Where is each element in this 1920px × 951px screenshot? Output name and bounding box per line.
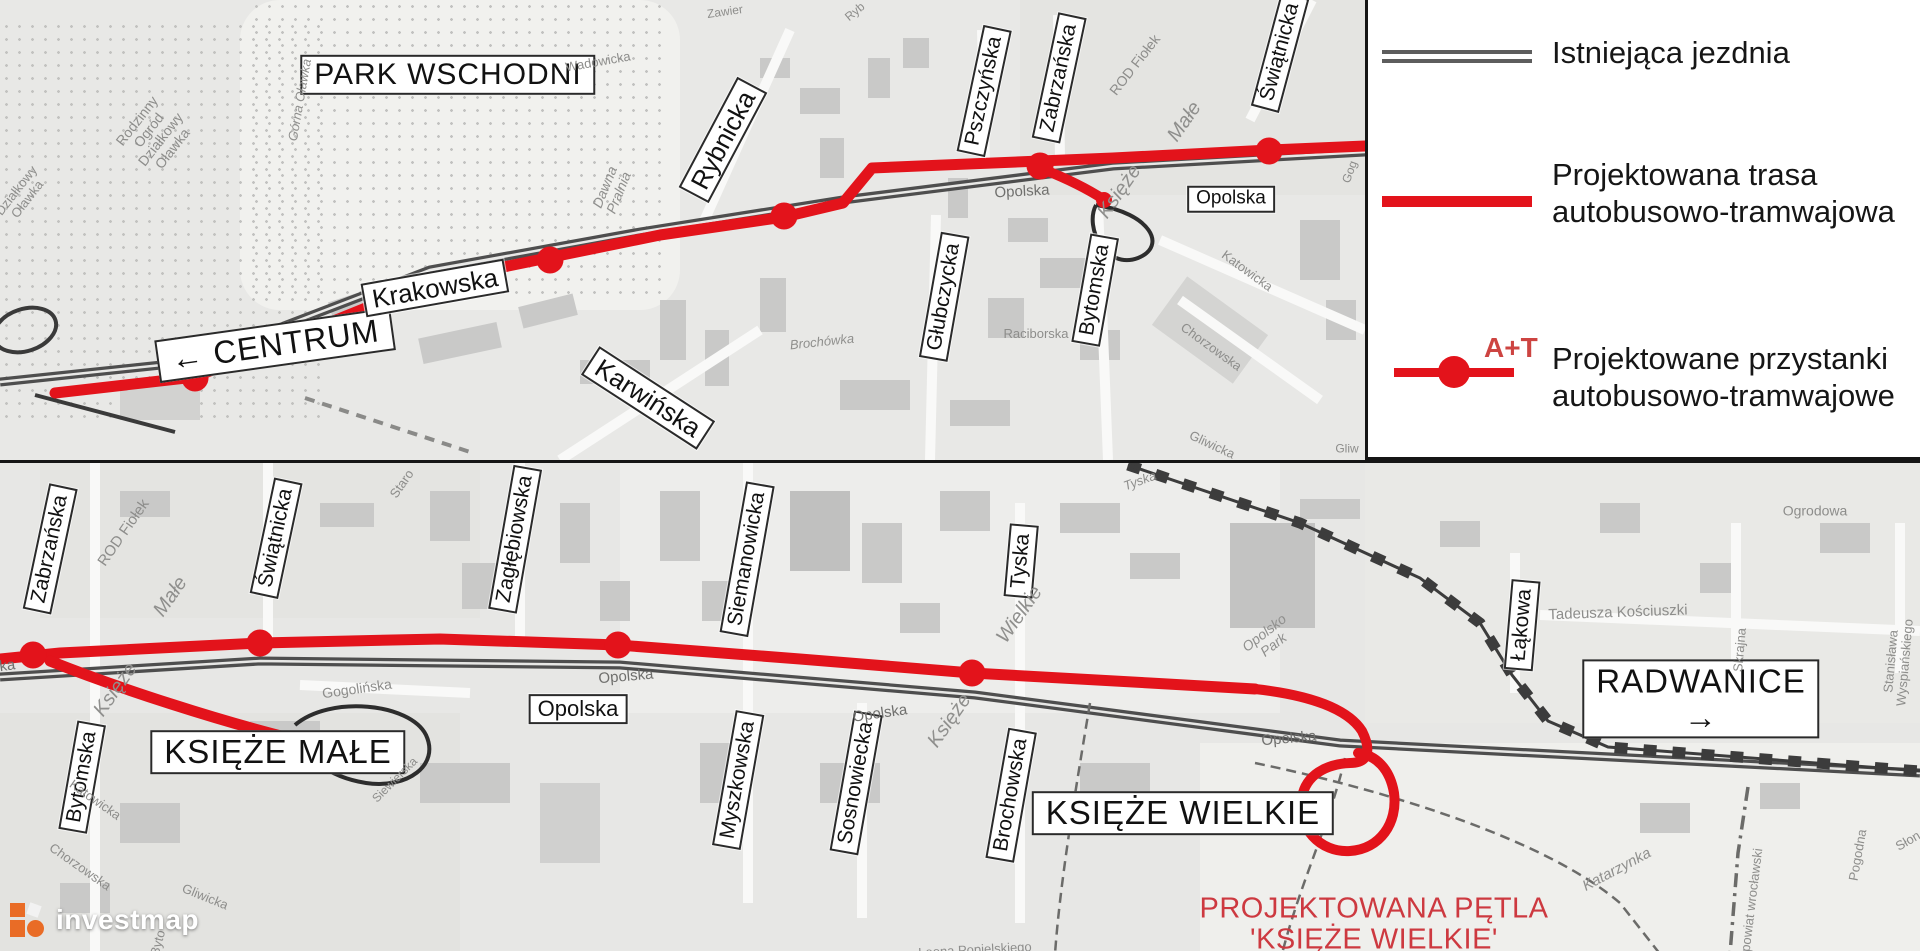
- bottom-map-labels: ZabrzańskaŚwiątnickaZagłębiowskaSiemanow…: [0, 463, 1920, 951]
- minor-label-katarzynka: Katarzynka: [1580, 845, 1654, 895]
- street-label-opolska: Opolska: [1187, 186, 1275, 213]
- legend-item-existing-road: Istniejąca jezdnia: [1368, 28, 1920, 108]
- legend-panel: Istniejąca jezdnia Projektowana trasa au…: [1365, 0, 1920, 460]
- minor-label-rod-fiolek-2: ROD Fiołek: [95, 497, 153, 570]
- street-label-lakowa: Łąkowa: [1504, 579, 1540, 672]
- caption-projektowana-petla: PROJEKTOWANA PĘTLA 'KSIĘŻE WIELKIE': [1199, 894, 1548, 951]
- minor-label-dawna-pralnia: Dawna Pralnia: [590, 164, 634, 216]
- minor-label-gogolinska: Gogolińska: [321, 677, 392, 702]
- minor-label-slon: Słon: [1893, 828, 1920, 853]
- minor-label-ksieze-wielkie-2: Wielkie: [993, 582, 1048, 647]
- legend-label-planned-route: Projektowana trasa autobusowo-tramwajowa: [1552, 156, 1895, 230]
- investmap-logo-icon: [10, 901, 46, 939]
- minor-label-wadowicka: Wadowicka: [564, 49, 631, 74]
- minor-label-ksieze-male-2: Małe: [1164, 98, 1207, 146]
- minor-label-ksieze-male-1: Księże: [1094, 161, 1146, 223]
- area-label-ksieze-male: KSIĘŻE MAŁE: [150, 730, 405, 774]
- street-label-swiatnicka-2: Świątnicka: [250, 477, 303, 599]
- area-label-park-wschodni: PARK WSCHODNI: [300, 55, 595, 95]
- street-label-bytomska-2: Bytomska: [58, 720, 105, 834]
- minor-label-ksieze-male-4: Małe: [150, 573, 193, 621]
- minor-label-gog: Gog: [1340, 159, 1360, 185]
- street-label-myszkowska: Myszkowska: [712, 710, 764, 850]
- street-label-karwinska: Karwińska: [581, 346, 715, 450]
- street-label-pszczynska: Pszczyńska: [957, 25, 1012, 157]
- minor-label-raciborska: Raciborska: [1003, 327, 1068, 341]
- minor-label-brochowka: Brochówka: [789, 332, 854, 353]
- street-label-sosnowiecka: Sosnowiecka: [830, 711, 883, 856]
- legend-label-existing-road: Istniejąca jezdnia: [1552, 34, 1790, 71]
- investmap-watermark: investmap: [10, 901, 199, 939]
- street-label-rybnicka: Rybnicka: [679, 77, 768, 203]
- road-label-opolska-b4: Opolska: [1261, 729, 1317, 750]
- minor-label-powiat-wroclawski: powiat wrocławski: [1739, 848, 1766, 951]
- direction-label-centrum: ← CENTRUM: [154, 307, 395, 382]
- legend-label-planned-stops: Projektowane przystanki autobusowo-tramw…: [1552, 340, 1895, 414]
- top-map-labels: PARK WSCHODNI← CENTRUMKrakowskaRybnickaK…: [0, 0, 1365, 460]
- minor-label-tyska-gray: Tyska: [1122, 469, 1158, 494]
- watermark-text: investmap: [56, 904, 199, 936]
- road-label-opolska-b1: Opolska: [0, 657, 16, 681]
- area-label-ksieze-wielkie: KSIĘŻE WIELKIE: [1032, 791, 1334, 835]
- existing-road-swatch-icon: [1382, 50, 1542, 64]
- street-label-zabrzanska: Zabrzańska: [1032, 13, 1087, 144]
- minor-label-tadeusza-kosciuszki: Tadeusza Kościuszki: [1548, 602, 1688, 623]
- minor-label-ryb: Ryb: [843, 0, 868, 24]
- minor-label-gliwicka: Gliwicka: [1187, 428, 1237, 460]
- street-label-glubczycka: Głubczycka: [919, 232, 969, 362]
- a-plus-t-symbol: A+T: [1484, 332, 1538, 364]
- planned-route-swatch-icon: [1382, 196, 1532, 207]
- minor-label-katowicka: Katowicka: [1219, 248, 1275, 294]
- minor-label-olawka-fragment: Działkowy Oławka: [0, 163, 51, 226]
- street-label-opolska-2: Opolska: [529, 694, 628, 724]
- minor-label-zawier: Zawier: [706, 3, 743, 21]
- direction-label-radwanice: RADWANICE →: [1582, 659, 1819, 738]
- street-label-krakowska: Krakowska: [361, 259, 510, 318]
- minor-label-staro: Staro: [387, 467, 416, 501]
- street-label-zabrzanska-2: Zabrzańska: [23, 484, 78, 615]
- street-label-zaglebiowska: Zagłębiowska: [488, 464, 542, 613]
- street-label-bytomska: Bytomska: [1071, 233, 1118, 347]
- minor-label-ksieze-wielkie-1: Księże: [924, 690, 976, 752]
- minor-label-leona-popielskiego: Leona Popielskiego: [918, 940, 1032, 951]
- road-label-opolska-gray: Opolska: [994, 182, 1050, 201]
- minor-label-wyspianskiego: Stanisława Wyspiańskiego: [1880, 617, 1916, 706]
- bottom-map-panel: ZabrzańskaŚwiątnickaZagłębiowskaSiemanow…: [0, 460, 1920, 951]
- minor-label-ogrodowa: Ogrodowa: [1783, 503, 1848, 518]
- top-map-panel: PARK WSCHODNI← CENTRUMKrakowskaRybnickaK…: [0, 0, 1365, 460]
- map-graphic: PARK WSCHODNI← CENTRUMKrakowskaRybnickaK…: [0, 0, 1920, 951]
- minor-label-gorna-olawka: Górna Oławka: [286, 58, 314, 142]
- minor-label-ksieze-male-3: Księże: [90, 659, 142, 721]
- street-label-swiatnicka: Świątnicka: [1251, 0, 1309, 113]
- road-label-opolska-b2: Opolska: [598, 667, 654, 688]
- minor-label-chorzowska-2: Chorzowska: [47, 841, 114, 894]
- planned-stop-swatch-icon: A+T: [1382, 338, 1542, 384]
- minor-label-opolsko-park: Opolsko Park: [1239, 611, 1298, 666]
- legend-item-planned-stops: A+T Projektowane przystanki autobusowo-t…: [1368, 338, 1920, 458]
- street-label-siemanowicka: Siemanowicka: [720, 481, 775, 637]
- legend-item-planned-route: Projektowana trasa autobusowo-tramwajowa: [1368, 148, 1920, 258]
- street-label-brochowska: Brochowska: [985, 727, 1036, 862]
- minor-label-pogodna: Pogodna: [1847, 828, 1870, 882]
- minor-label-rod-fiolek: ROD Fiołek: [1107, 32, 1163, 98]
- minor-label-chorzowska: Chorzowska: [1178, 320, 1244, 373]
- minor-label-gliw: Gliw: [1335, 443, 1358, 456]
- minor-label-rod-olawka: Rodzinny Ogród Działkowy Oławka: [112, 92, 198, 179]
